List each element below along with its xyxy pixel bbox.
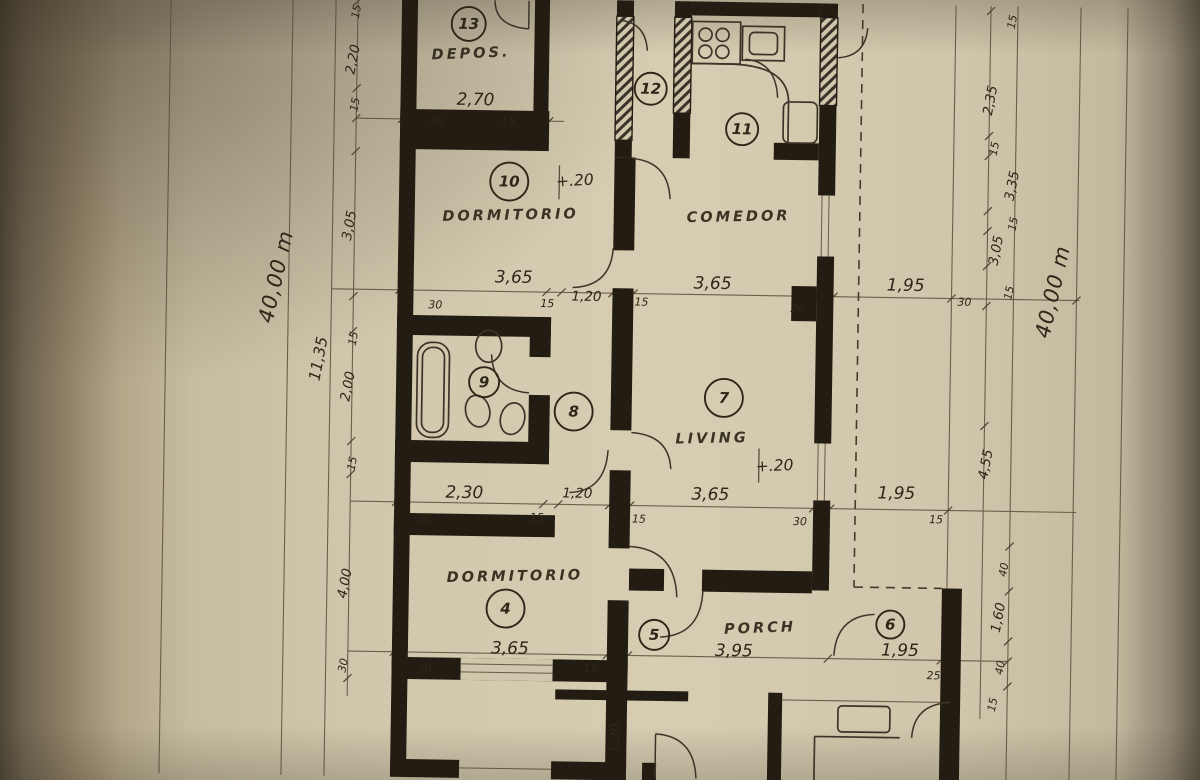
room-7-number: 7 — [719, 389, 730, 407]
tick: 15 — [530, 511, 544, 524]
right-chain-0: 15 — [1005, 14, 1020, 30]
tick: 15 — [501, 114, 515, 127]
living-label: LIVING — [675, 430, 749, 447]
dim-hall-width-2: 1,20 — [562, 485, 592, 501]
dim-service-width: 1,95 — [881, 640, 919, 661]
left-chain-4: 15 — [346, 330, 361, 346]
dim-dorm-lower-width: 3,65 — [491, 638, 529, 659]
tick: 15 — [540, 297, 554, 310]
depos-label: DEPOS. — [431, 44, 510, 63]
tick: 15 — [584, 662, 598, 675]
tick: 30 — [417, 512, 431, 525]
tick: 20 — [790, 302, 804, 315]
dim-bottom-door: 1,20 — [607, 723, 623, 753]
room-11-number: 11 — [732, 120, 753, 138]
left-chain-0: 15 — [349, 3, 364, 19]
dim-bath-width: 2,30 — [445, 483, 483, 504]
dim-dorm-upper-width: 3,65 — [495, 267, 533, 288]
level-mark-upper: +.20 — [556, 171, 595, 191]
room-6-number: 6 — [885, 616, 896, 634]
room-10-number: 10 — [499, 172, 520, 190]
right-chain-6: 15 — [1001, 285, 1016, 301]
tick: 30 — [793, 515, 807, 528]
room-13-number: 13 — [458, 15, 479, 33]
tick: 15 — [634, 296, 648, 309]
tick: 15 — [929, 513, 943, 526]
comedor-label: COMEDOR — [687, 208, 791, 226]
tick: 30 — [417, 663, 431, 676]
dim-side-yard: 1,95 — [887, 275, 925, 296]
room-5-number: 5 — [649, 626, 660, 644]
porch-label: PORCH — [724, 619, 796, 638]
room-12-number: 12 — [640, 80, 661, 98]
room-4-number: 4 — [499, 599, 511, 617]
dorm-upper-label: DORMITORIO — [442, 206, 579, 225]
right-chain-10: 40 — [993, 660, 1008, 676]
dim-depos-width: 2,70 — [456, 90, 494, 111]
tick: 25 — [926, 669, 940, 682]
room-8-number: 8 — [568, 403, 579, 421]
left-chain-6: 15 — [345, 455, 360, 471]
left-chain-2: 15 — [347, 96, 362, 112]
room-9-number: 9 — [479, 373, 490, 391]
tick: 30 — [957, 296, 971, 309]
dim-living-width: 3,65 — [691, 484, 729, 505]
tick: 30 — [429, 114, 443, 127]
level-mark-living: +.20 — [755, 456, 793, 475]
right-chain-2: 15 — [987, 140, 1002, 156]
dim-hall-width: 1,20 — [571, 289, 601, 305]
dim-side-yard-2: 1,95 — [877, 483, 915, 504]
tick: 15 — [632, 513, 646, 526]
dorm-lower-label: DORMITORIO — [447, 567, 584, 586]
right-chain-4: 15 — [1006, 216, 1021, 232]
floor-plan-photo: 13 12 11 10 9 8 7 4 5 6 DEPOS. COMEDOR D… — [0, 0, 1200, 780]
tick: 30 — [428, 298, 442, 311]
dim-comedor-width: 3,65 — [694, 273, 732, 294]
right-chain-8: 40 — [996, 562, 1011, 578]
dim-porch-width: 3,95 — [715, 641, 753, 662]
right-chain-11: 15 — [985, 696, 1000, 712]
left-chain-8: 30 — [335, 657, 350, 673]
